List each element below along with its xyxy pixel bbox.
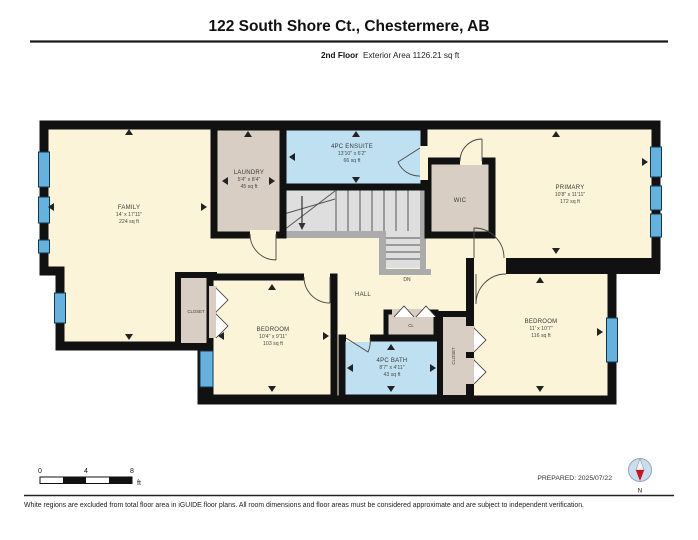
scale-0: 0 [38, 468, 42, 475]
floor-plan-page: 122 South Shore Ct., Chestermere, AB 2nd… [0, 0, 698, 540]
bedroom-right-area: 116 sq ft [531, 333, 551, 339]
family-area: 224 sq ft [119, 219, 139, 225]
bath-area: 43 sq ft [383, 372, 401, 378]
stairs-dn-label: DN [403, 277, 411, 283]
scale-bar-seg1 [63, 477, 86, 484]
ensuite-dims: 13'10" x 6'2" [338, 151, 367, 157]
primary-window-3 [651, 214, 662, 237]
floor-label: 2nd Floor [321, 51, 359, 60]
ensuite-area: 66 sq ft [343, 158, 361, 164]
primary-window-1 [651, 147, 662, 177]
prepared-date: PREPARED: 2025/07/22 [537, 475, 612, 482]
primary-name: PRIMARY [556, 185, 585, 191]
scale-unit: ft [137, 480, 141, 487]
closet-left-name: CLOSET [187, 309, 205, 314]
floor-plan-canvas: 122 South Shore Ct., Chestermere, AB 2nd… [0, 0, 698, 540]
bedroom-right-name: BEDROOM [525, 319, 558, 325]
primary-area: 172 sq ft [560, 199, 580, 205]
bath-name: 4PC BATH [377, 358, 408, 364]
disclaimer-text: White regions are excluded from total fl… [24, 502, 584, 509]
family-window-2 [39, 197, 50, 223]
scale-4: 4 [84, 468, 88, 475]
primary-dims: 10'8" x 11'11" [555, 192, 586, 198]
closet-right-name: CLOSET [451, 347, 456, 365]
family-window-1 [39, 152, 50, 187]
bedroom-left-window [200, 351, 213, 387]
page-title: 122 South Shore Ct., Chestermere, AB [208, 18, 489, 35]
stair-knee-wall-bottom [379, 269, 431, 275]
scale-bar-seg2 [109, 477, 132, 484]
bedroom-left-area: 103 sq ft [263, 341, 283, 347]
hall-name: HALL [355, 292, 371, 298]
header: 122 South Shore Ct., Chestermere, AB 2nd… [30, 18, 668, 60]
family-dims: 14' x 17'11" [116, 212, 142, 218]
bath-dims: 8'7" x 4'11" [379, 365, 404, 371]
wic-name: WIC [454, 198, 467, 204]
compass: N [629, 459, 652, 495]
stair-lower-run [386, 231, 424, 268]
scale-8: 8 [130, 468, 134, 475]
laundry-dims: 5'4" x 8'4" [238, 177, 261, 183]
exterior-area-label: Exterior Area 1126.21 sq ft [363, 51, 460, 60]
stair-knee-wall-top [281, 231, 386, 238]
laundry-name: LAUNDRY [234, 170, 264, 176]
stair-knee-wall-left [379, 231, 386, 275]
bedroom-left-name: BEDROOM [257, 327, 290, 333]
bedroom-left-dims: 10'4" x 9'11" [259, 334, 287, 340]
family-name: FAMILY [118, 205, 140, 211]
footer: White regions are excluded from total fl… [24, 496, 674, 510]
bedroom-right-window [607, 318, 618, 362]
bedroom-right-dims: 11' x 10'7" [529, 326, 552, 332]
family-window-3 [39, 240, 50, 253]
cl-name: CL [408, 323, 414, 328]
family-window-4 [55, 293, 66, 323]
primary-window-2 [651, 186, 662, 210]
ensuite-name: 4PC ENSUITE [331, 144, 373, 150]
scale-bar: 0 4 8 ft [38, 468, 141, 487]
compass-north-label: N [638, 488, 643, 495]
laundry-area: 45 sq ft [240, 184, 258, 190]
